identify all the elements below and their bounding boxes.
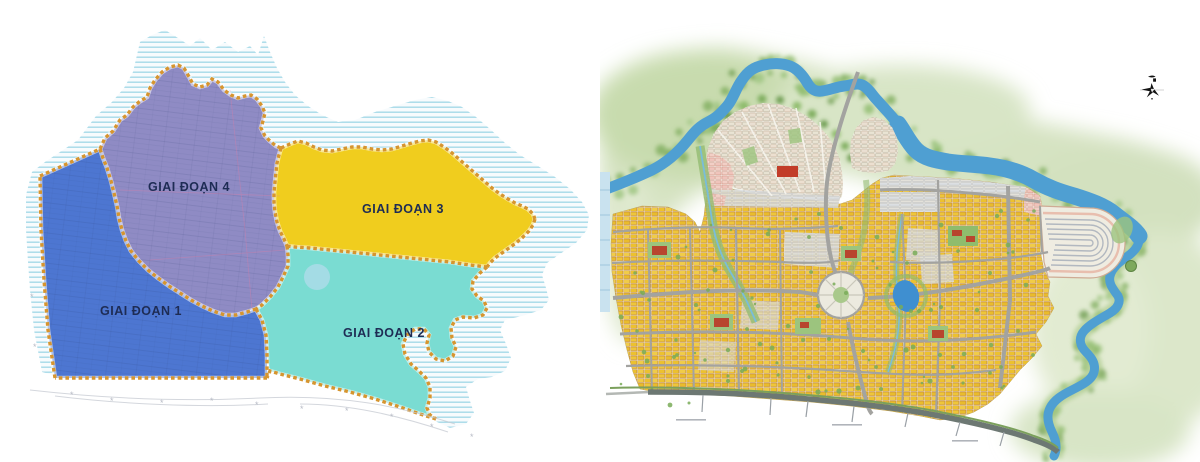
svg-text:*: * <box>345 406 349 416</box>
svg-text:*: * <box>210 396 214 406</box>
svg-text:*: * <box>33 342 37 352</box>
svg-text:GIAI ĐOẠN 1: GIAI ĐOẠN 1 <box>100 304 182 318</box>
svg-text:*: * <box>255 400 259 410</box>
svg-text:*: * <box>30 292 34 302</box>
svg-text:GIAI ĐOẠN 3: GIAI ĐOẠN 3 <box>362 202 444 216</box>
svg-text:*: * <box>70 390 74 400</box>
svg-text:*: * <box>390 412 394 422</box>
svg-text:*: * <box>160 398 164 408</box>
svg-text:*: * <box>470 432 474 442</box>
svg-text:*: * <box>430 422 434 432</box>
svg-text:*: * <box>300 404 304 414</box>
svg-text:GIAI ĐOẠN 4: GIAI ĐOẠN 4 <box>148 180 230 194</box>
svg-text:*: * <box>110 396 114 406</box>
svg-text:GIAI ĐOẠN 2: GIAI ĐOẠN 2 <box>343 326 425 340</box>
